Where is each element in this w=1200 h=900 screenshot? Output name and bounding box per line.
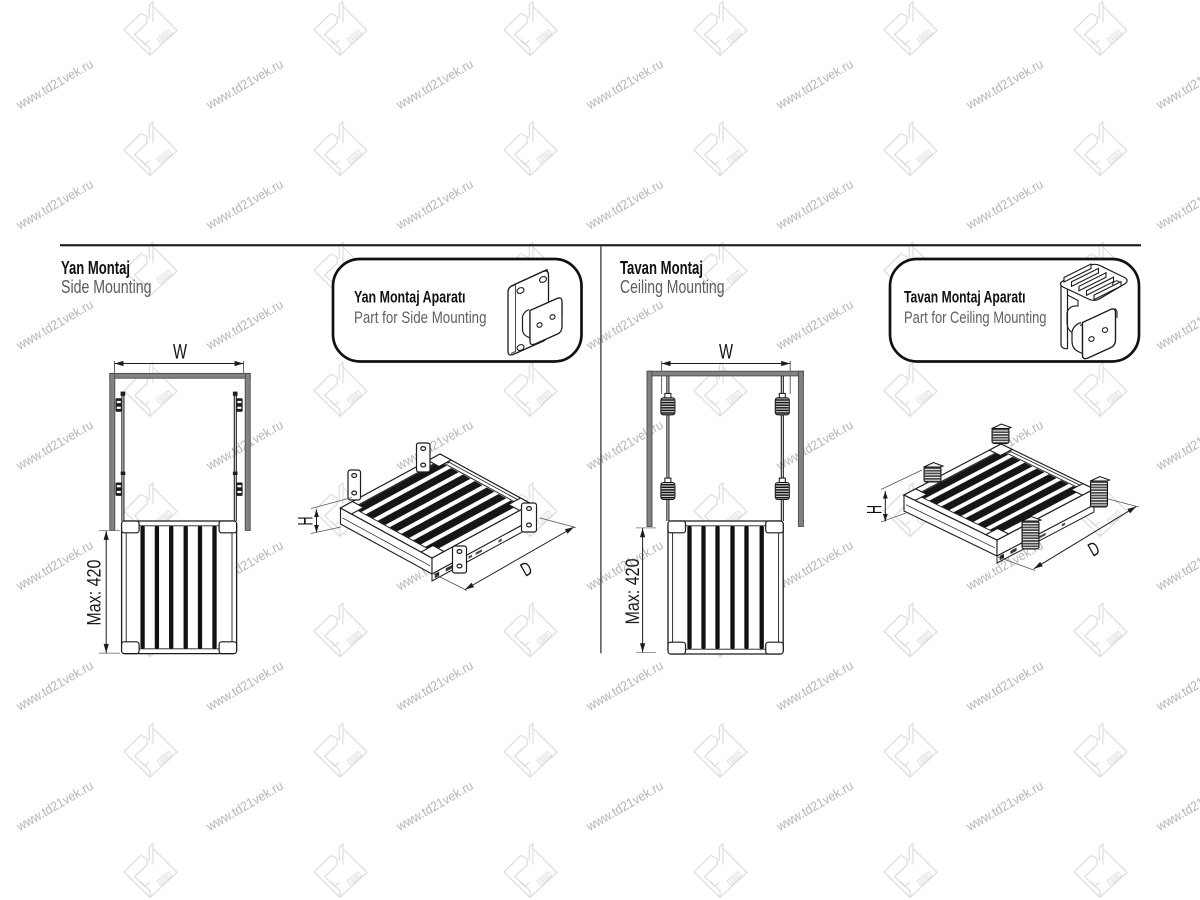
svg-text:W: W	[173, 340, 187, 364]
svg-text:Max: 420: Max: 420	[622, 558, 644, 624]
svg-text:Yan Montaj: Yan Montaj	[61, 258, 130, 278]
svg-text:H: H	[294, 517, 318, 526]
svg-text:Part for Side Mounting: Part for Side Mounting	[354, 308, 487, 327]
svg-text:Side Mounting: Side Mounting	[61, 277, 152, 297]
svg-text:H: H	[862, 505, 886, 514]
svg-text:Tavan Montaj: Tavan Montaj	[620, 258, 703, 278]
svg-text:Tavan Montaj Aparatı: Tavan Montaj Aparatı	[904, 288, 1026, 307]
svg-text:Max: 420: Max: 420	[83, 560, 105, 626]
svg-text:W: W	[719, 340, 733, 364]
svg-text:Ceiling Mounting: Ceiling Mounting	[620, 277, 725, 297]
svg-text:Yan Montaj Aparatı: Yan Montaj Aparatı	[354, 288, 466, 307]
svg-text:Part for Ceiling Mounting: Part for Ceiling Mounting	[904, 308, 1047, 327]
